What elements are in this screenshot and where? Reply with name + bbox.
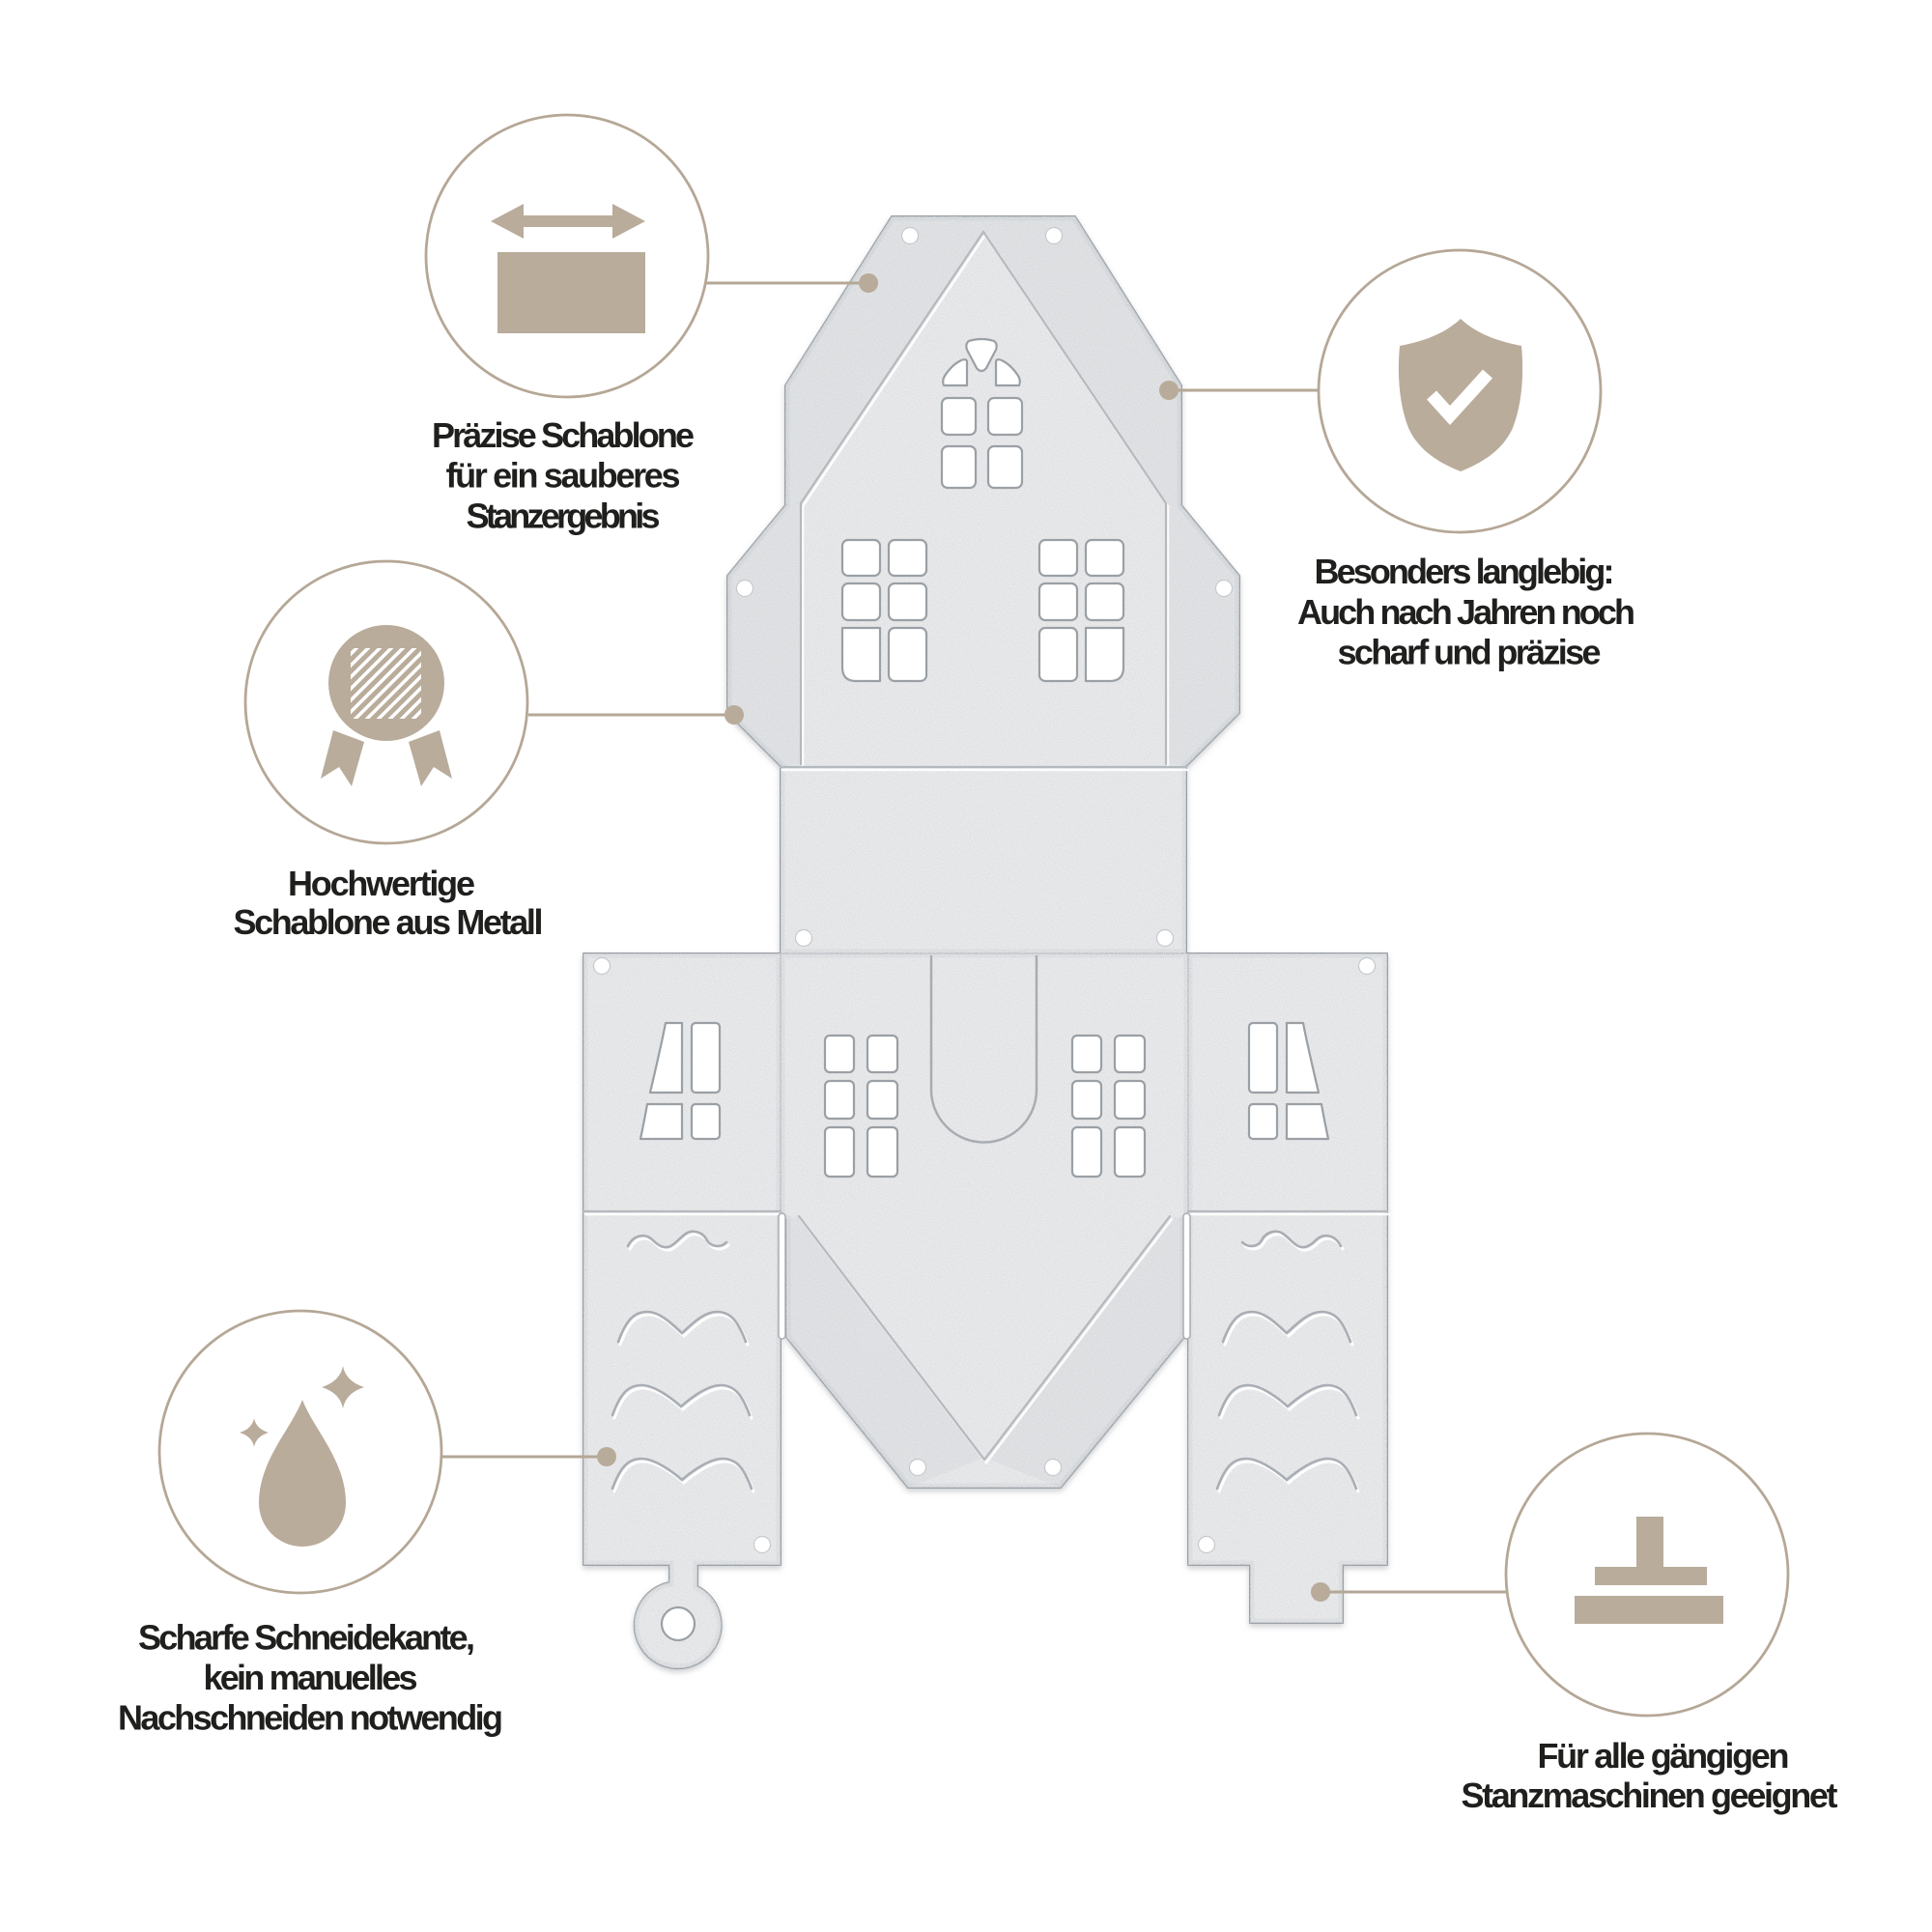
svg-text:Präzise Schablone: Präzise Schablone [432,415,695,455]
svg-text:Hochwertige: Hochwertige [288,864,475,903]
svg-text:Für alle gängigen: Für alle gängigen [1538,1736,1790,1776]
svg-text:Stanzmaschinen geeignet: Stanzmaschinen geeignet [1462,1776,1838,1815]
svg-text:Auch nach Jahren noch: Auch nach Jahren noch [1297,592,1635,632]
svg-text:Schablone aus Metall: Schablone aus Metall [234,902,544,942]
svg-text:kein manuelles: kein manuelles [204,1658,418,1697]
svg-text:Nachschneiden notwendig: Nachschneiden notwendig [118,1698,503,1738]
svg-text:Scharfe Schneidekante,: Scharfe Schneidekante, [138,1618,475,1658]
svg-text:scharf und präzise: scharf und präzise [1338,633,1602,672]
svg-text:Besonders langlebig:: Besonders langlebig: [1315,552,1615,591]
svg-text:für ein sauberes: für ein sauberes [446,456,681,496]
svg-text:Stanzergebnis: Stanzergebnis [467,496,661,535]
